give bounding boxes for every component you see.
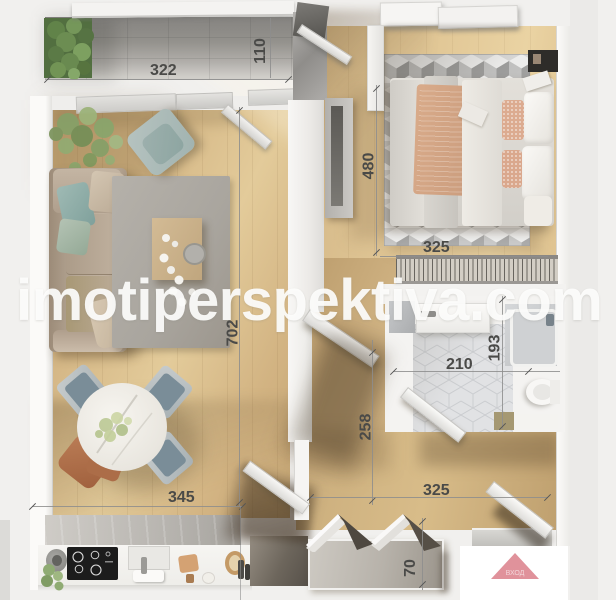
- svg-text:ВХОД: ВХОД: [506, 570, 525, 577]
